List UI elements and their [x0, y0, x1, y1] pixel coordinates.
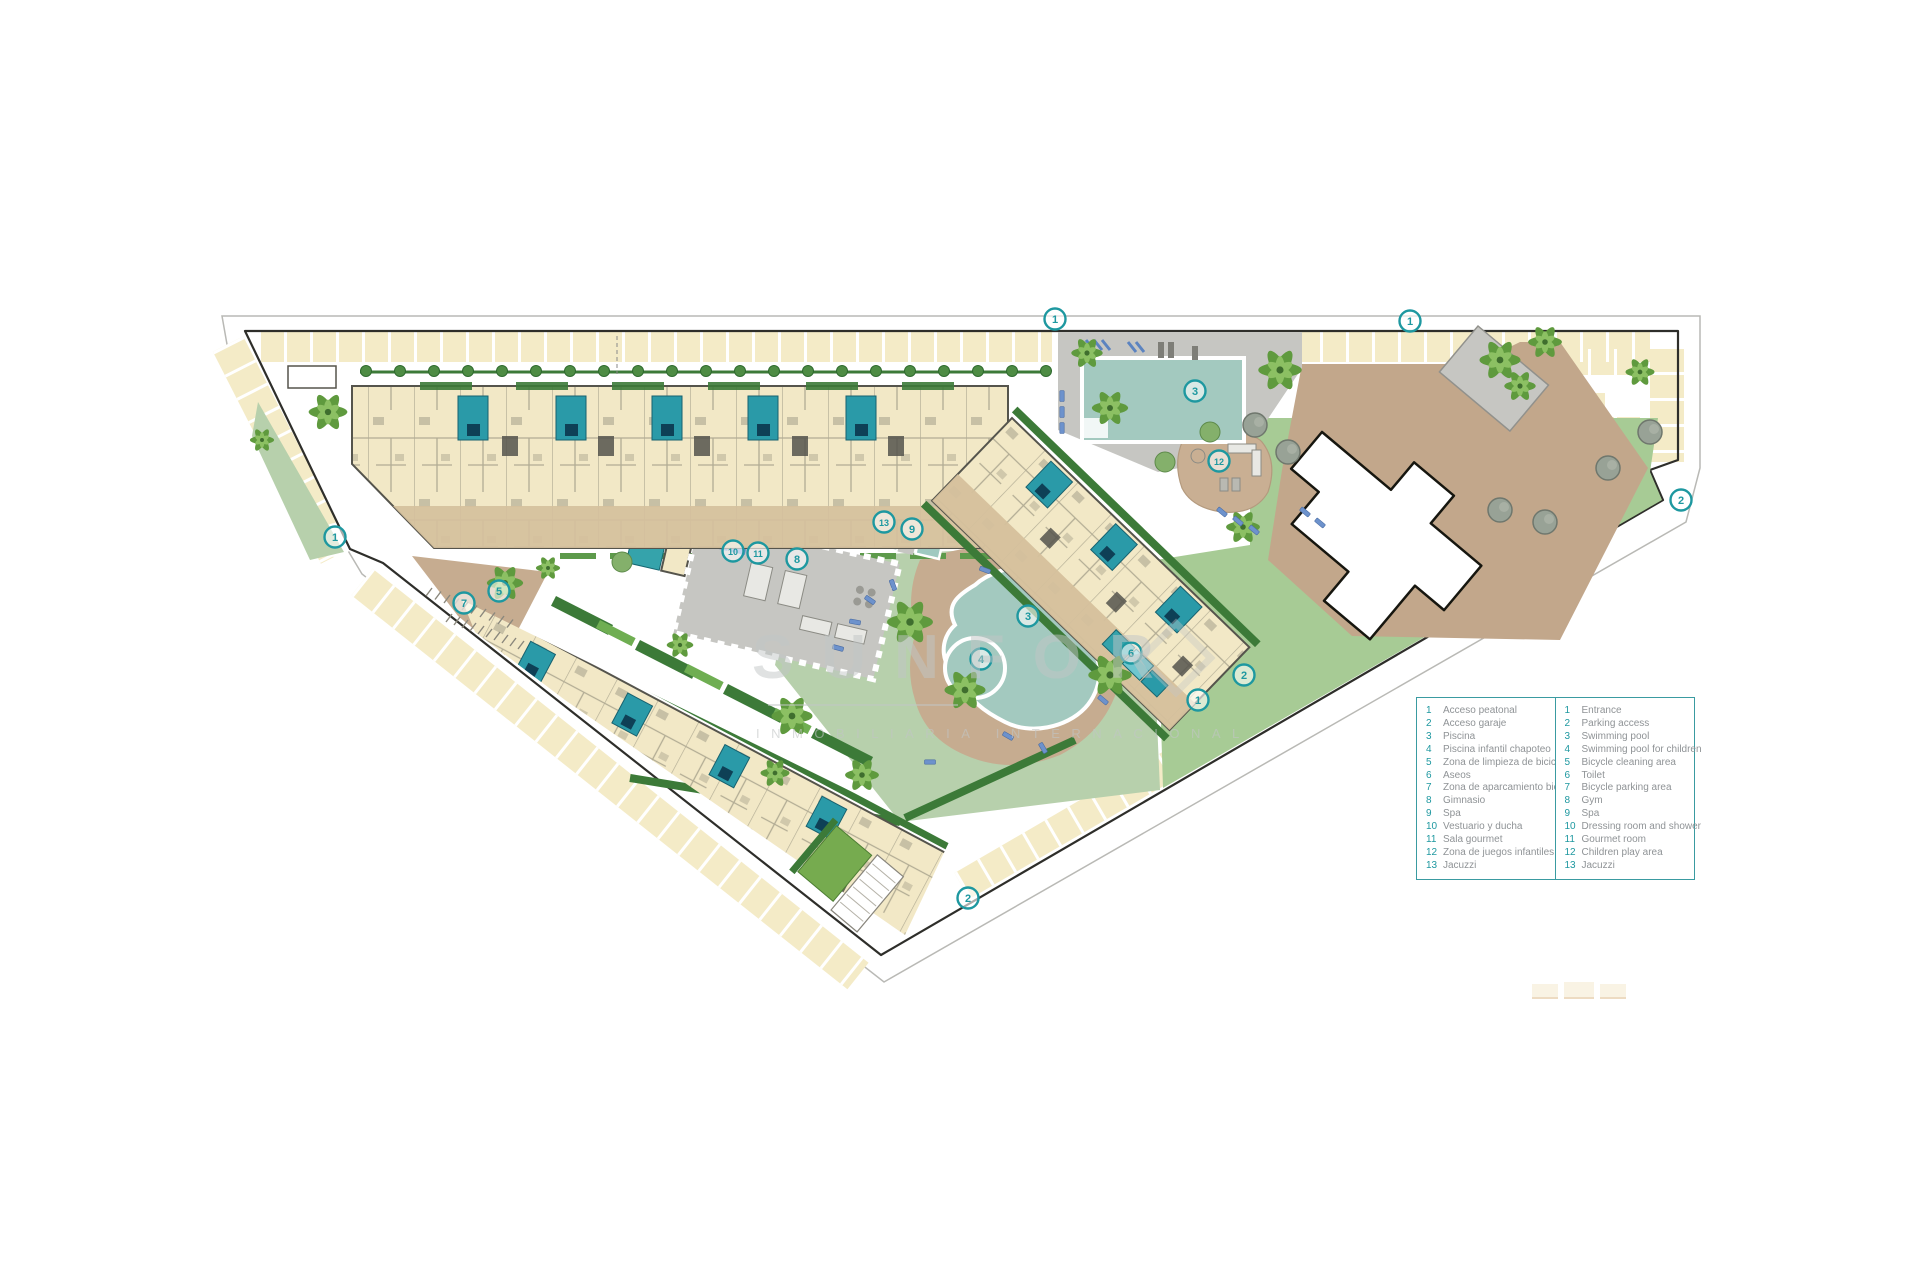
legend-number: 13 — [1565, 860, 1582, 873]
legend-item: 12Children play area — [1565, 847, 1688, 860]
legend-number: 4 — [1565, 744, 1582, 757]
legend-number: 3 — [1565, 731, 1582, 744]
legend-item: 10Dressing room and shower — [1565, 821, 1688, 834]
legend-number: 3 — [1426, 731, 1443, 744]
legend-column-spanish: 1Acceso peatonal2Acceso garaje3Piscina4P… — [1416, 697, 1556, 880]
svg-text:2: 2 — [965, 893, 971, 905]
legend-number: 5 — [1426, 757, 1443, 770]
legend-number: 6 — [1426, 770, 1443, 783]
legend-label: Jacuzzi — [1582, 860, 1615, 873]
legend-item: 3Piscina — [1426, 731, 1549, 744]
legend-item: 12Zona de juegos infantiles — [1426, 847, 1549, 860]
legend-item: 2Parking access — [1565, 718, 1688, 731]
legend-item: 6Aseos — [1426, 770, 1549, 783]
svg-text:11: 11 — [753, 549, 763, 559]
legend-item: 9Spa — [1426, 808, 1549, 821]
map-marker-1[interactable]: 1 — [325, 527, 346, 548]
legend-item: 8Gym — [1565, 795, 1688, 808]
legend-item: 4Piscina infantil chapoteo — [1426, 744, 1549, 757]
svg-text:4: 4 — [978, 654, 985, 666]
legend-label: Toilet — [1582, 770, 1605, 783]
legend-item: 8Gimnasio — [1426, 795, 1549, 808]
map-marker-7[interactable]: 7 — [454, 593, 475, 614]
map-marker-1[interactable]: 1 — [1045, 309, 1066, 330]
legend-label: Children play area — [1582, 847, 1663, 860]
legend-item: 11Sala gourmet — [1426, 834, 1549, 847]
legend-item: 9Spa — [1565, 808, 1688, 821]
svg-text:1: 1 — [1407, 316, 1413, 328]
svg-text:9: 9 — [909, 524, 915, 536]
svg-text:2: 2 — [1241, 670, 1247, 682]
legend-label: Aseos — [1443, 770, 1471, 783]
svg-text:8: 8 — [794, 554, 800, 566]
svg-text:1: 1 — [332, 532, 338, 544]
legend-number: 4 — [1426, 744, 1443, 757]
legend-item: 10Vestuario y ducha — [1426, 821, 1549, 834]
map-marker-13[interactable]: 13 — [874, 512, 895, 533]
legend-label: Gourmet room — [1582, 834, 1646, 847]
legend-label: Parking access — [1582, 718, 1650, 731]
legend-item: 1Entrance — [1565, 705, 1688, 718]
svg-text:7: 7 — [461, 598, 467, 610]
legend-item: 7Bicycle parking area — [1565, 782, 1688, 795]
legend-number: 8 — [1426, 795, 1443, 808]
map-marker-8[interactable]: 8 — [787, 549, 808, 570]
legend-number: 9 — [1426, 808, 1443, 821]
map-marker-9[interactable]: 9 — [902, 519, 923, 540]
legend-number: 12 — [1565, 847, 1582, 860]
svg-text:3: 3 — [1025, 611, 1031, 623]
legend-item: 4Swimming pool for children — [1565, 744, 1688, 757]
map-marker-11[interactable]: 11 — [748, 543, 769, 564]
legend-number: 12 — [1426, 847, 1443, 860]
legend-item: 6Toilet — [1565, 770, 1688, 783]
legend-number: 2 — [1426, 718, 1443, 731]
legend-label: Zona de juegos infantiles — [1443, 847, 1554, 860]
map-marker-5[interactable]: 5 — [489, 581, 510, 602]
legend-item: 5Bicycle cleaning area — [1565, 757, 1688, 770]
legend: 1Acceso peatonal2Acceso garaje3Piscina4P… — [1416, 697, 1695, 880]
legend-number: 7 — [1426, 782, 1443, 795]
legend-number: 11 — [1565, 834, 1582, 847]
faded-stalls — [1532, 982, 1626, 998]
legend-label: Swimming pool — [1582, 731, 1650, 744]
legend-label: Sala gourmet — [1443, 834, 1502, 847]
legend-item: 13Jacuzzi — [1565, 860, 1688, 873]
legend-item: 13Jacuzzi — [1426, 860, 1549, 873]
legend-number: 10 — [1426, 821, 1443, 834]
legend-item: 5Zona de limpieza de bicicletas — [1426, 757, 1549, 770]
map-marker-1[interactable]: 1 — [1400, 311, 1421, 332]
map-marker-2[interactable]: 2 — [958, 888, 979, 909]
legend-column-english: 1Entrance2Parking access3Swimming pool4S… — [1555, 697, 1695, 880]
map-marker-3[interactable]: 3 — [1018, 606, 1039, 627]
map-marker-1[interactable]: 1 — [1188, 690, 1209, 711]
svg-text:12: 12 — [1214, 457, 1224, 467]
legend-label: Piscina — [1443, 731, 1475, 744]
legend-label: Bicycle cleaning area — [1582, 757, 1677, 770]
legend-label: Acceso peatonal — [1443, 705, 1517, 718]
legend-number: 13 — [1426, 860, 1443, 873]
legend-label: Vestuario y ducha — [1443, 821, 1523, 834]
map-marker-10[interactable]: 10 — [723, 541, 744, 562]
map-marker-12[interactable]: 12 — [1209, 451, 1230, 472]
legend-label: Bicycle parking area — [1582, 782, 1672, 795]
legend-number: 6 — [1565, 770, 1582, 783]
legend-number: 5 — [1565, 757, 1582, 770]
map-marker-2[interactable]: 2 — [1671, 490, 1692, 511]
site-plan-drawing: 11112223345678910111213 — [0, 0, 1920, 1280]
svg-text:10: 10 — [728, 547, 738, 557]
legend-item: 3Swimming pool — [1565, 731, 1688, 744]
legend-number: 2 — [1565, 718, 1582, 731]
legend-label: Spa — [1582, 808, 1600, 821]
svg-text:3: 3 — [1192, 386, 1198, 398]
legend-label: Gimnasio — [1443, 795, 1485, 808]
legend-label: Entrance — [1582, 705, 1622, 718]
map-marker-6[interactable]: 6 — [1121, 643, 1142, 664]
legend-label: Dressing room and shower — [1582, 821, 1702, 834]
legend-label: Gym — [1582, 795, 1603, 808]
legend-number: 7 — [1565, 782, 1582, 795]
legend-number: 10 — [1565, 821, 1582, 834]
map-marker-4[interactable]: 4 — [971, 649, 992, 670]
legend-label: Jacuzzi — [1443, 860, 1476, 873]
svg-text:2: 2 — [1678, 495, 1684, 507]
legend-item: 2Acceso garaje — [1426, 718, 1549, 731]
legend-number: 8 — [1565, 795, 1582, 808]
legend-label: Piscina infantil chapoteo — [1443, 744, 1551, 757]
svg-text:5: 5 — [496, 586, 502, 598]
legend-number: 11 — [1426, 834, 1443, 847]
legend-number: 1 — [1426, 705, 1443, 718]
svg-text:13: 13 — [879, 518, 889, 528]
map-marker-2[interactable]: 2 — [1234, 665, 1255, 686]
svg-text:1: 1 — [1195, 695, 1201, 707]
legend-item: 7Zona de aparcamiento bicicletas — [1426, 782, 1549, 795]
legend-item: 11Gourmet room — [1565, 834, 1688, 847]
svg-text:6: 6 — [1128, 648, 1134, 660]
site-plan-page: 11112223345678910111213 SUNFOR INMOBILIA… — [0, 0, 1920, 1280]
legend-label: Swimming pool for children — [1582, 744, 1702, 757]
legend-number: 1 — [1565, 705, 1582, 718]
legend-label: Spa — [1443, 808, 1461, 821]
legend-label: Acceso garaje — [1443, 718, 1506, 731]
legend-item: 1Acceso peatonal — [1426, 705, 1549, 718]
entrance-structure — [288, 366, 336, 388]
svg-text:1: 1 — [1052, 314, 1058, 326]
legend-number: 9 — [1565, 808, 1582, 821]
map-marker-3[interactable]: 3 — [1185, 381, 1206, 402]
